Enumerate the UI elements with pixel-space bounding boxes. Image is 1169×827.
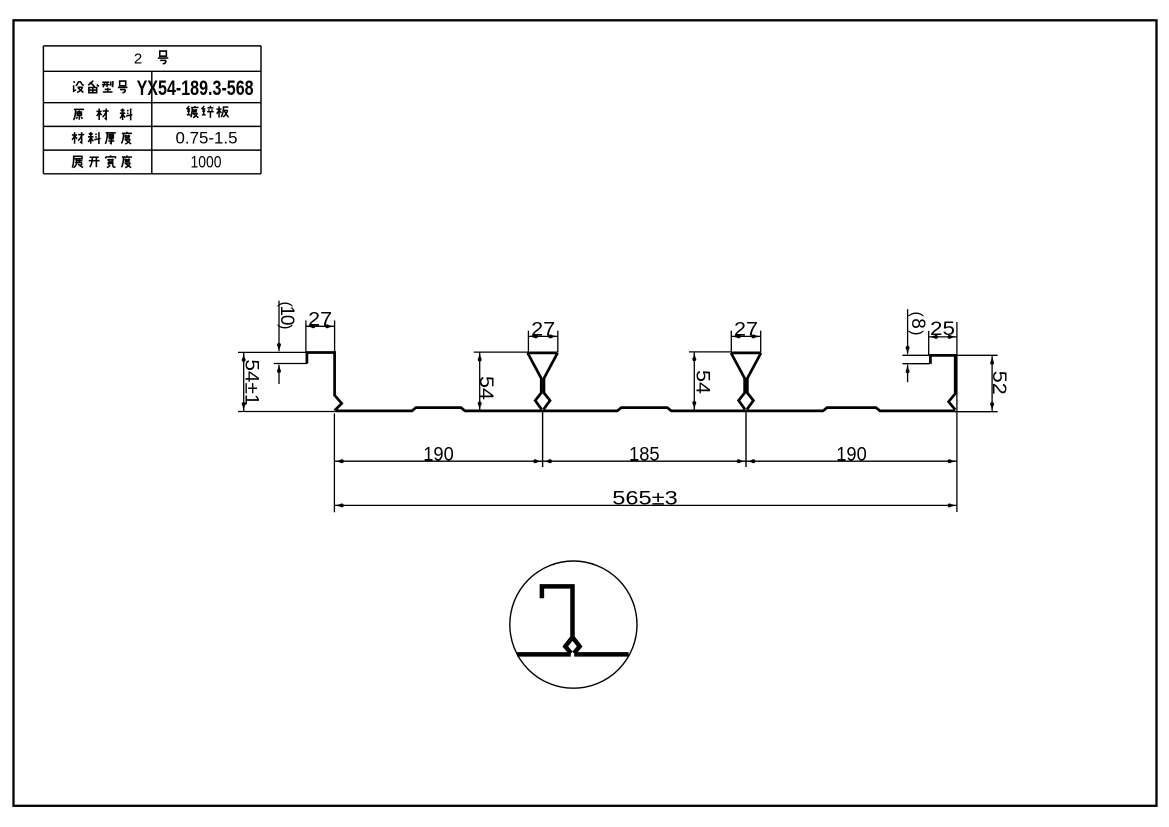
svg-text:(10): (10) — [276, 302, 297, 330]
svg-text:25: 25 — [930, 319, 955, 340]
svg-text:(8): (8) — [907, 312, 928, 336]
svg-text:1000: 1000 — [191, 154, 222, 172]
svg-text:27: 27 — [531, 319, 555, 340]
svg-text:190: 190 — [836, 445, 867, 466]
svg-text:54±1: 54±1 — [240, 359, 261, 405]
svg-text:52: 52 — [988, 371, 1009, 395]
svg-text:185: 185 — [629, 445, 660, 466]
svg-text:27: 27 — [308, 309, 332, 330]
svg-text:565±3: 565±3 — [612, 489, 678, 510]
svg-text:27: 27 — [734, 319, 758, 340]
svg-text:0.75-1.5: 0.75-1.5 — [176, 129, 238, 147]
svg-text:190: 190 — [423, 445, 454, 466]
svg-text:YX54-189.3-568: YX54-189.3-568 — [137, 77, 254, 100]
svg-text:2: 2 — [134, 51, 142, 68]
svg-text:54: 54 — [475, 376, 496, 400]
svg-text:54: 54 — [691, 370, 712, 394]
